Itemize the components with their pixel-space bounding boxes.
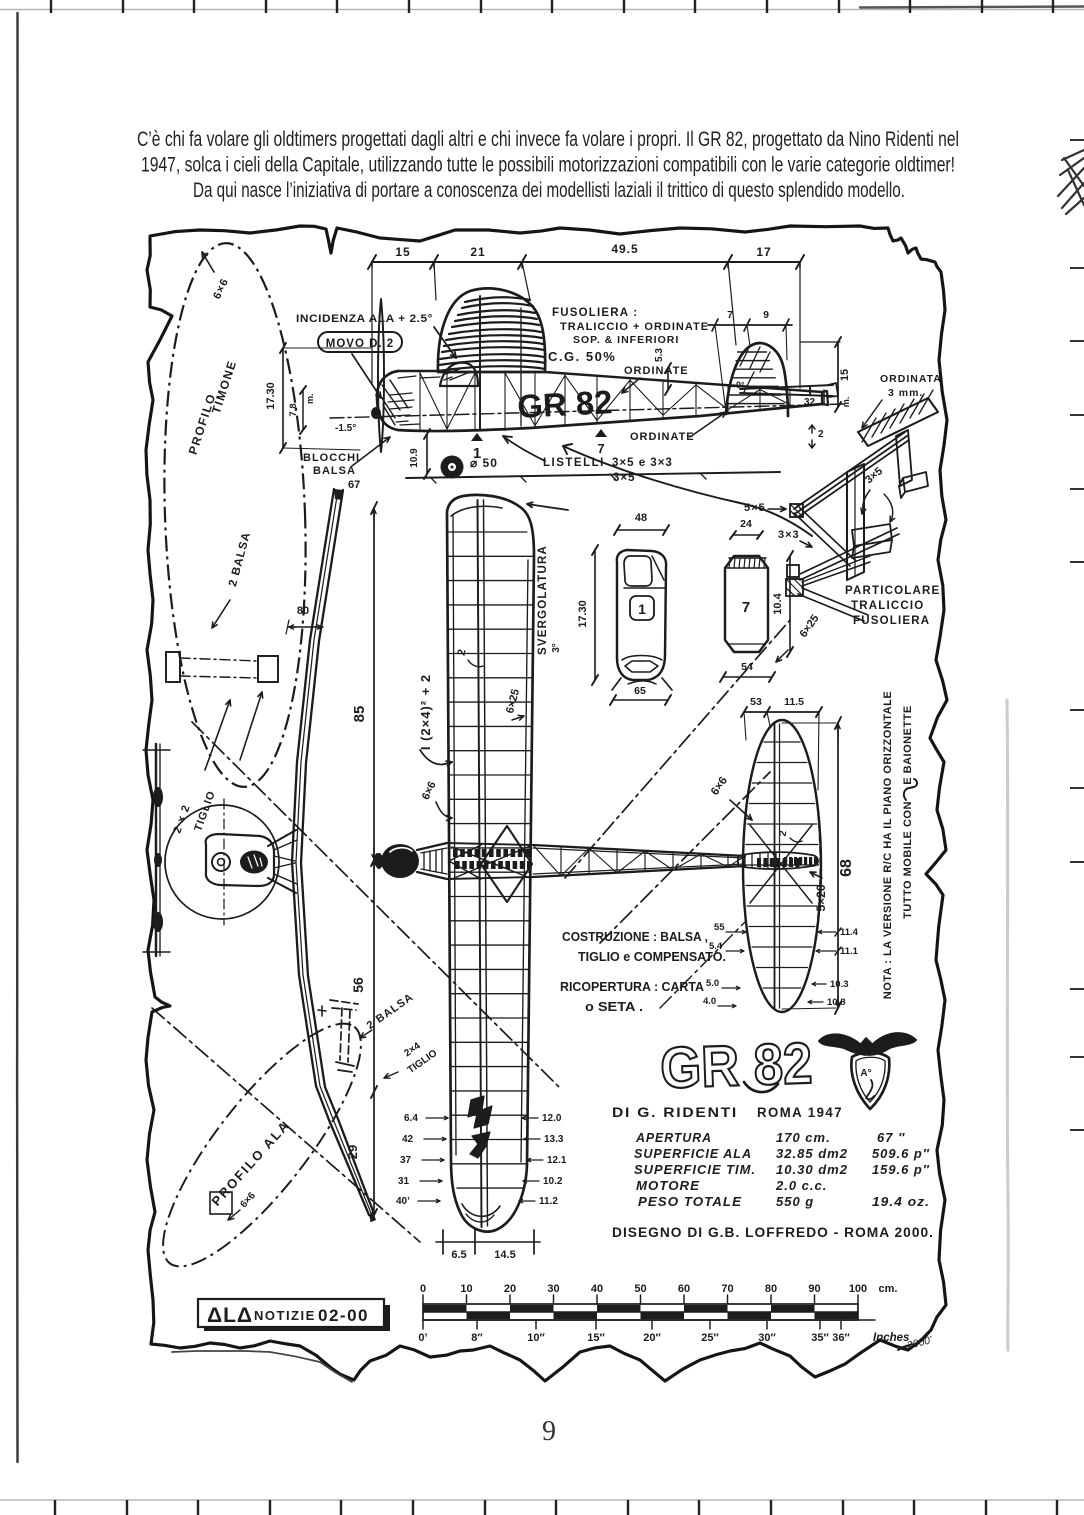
svg-text:E BAIONETTE: E BAIONETTE xyxy=(902,705,914,784)
svg-text:13.3: 13.3 xyxy=(544,1134,564,1145)
svg-text:100: 100 xyxy=(849,1283,867,1295)
svg-text:10: 10 xyxy=(460,1283,472,1295)
svg-text:10.3: 10.3 xyxy=(830,979,849,990)
svg-text:30″: 30″ xyxy=(758,1332,776,1344)
svg-text:INCIDENZA ALA + 2.5°: INCIDENZA ALA + 2.5° xyxy=(296,313,433,325)
svg-text:53: 53 xyxy=(750,696,762,708)
svg-text:6×25: 6×25 xyxy=(504,688,522,715)
svg-text:10.30 dm2: 10.30 dm2 xyxy=(776,1162,848,1177)
svg-text:11.4: 11.4 xyxy=(840,927,859,938)
svg-text:6×6: 6×6 xyxy=(211,276,231,301)
svg-text:ROMA 1947: ROMA 1947 xyxy=(757,1105,843,1120)
svg-text:5.3: 5.3 xyxy=(654,348,665,362)
svg-text:509.6 p″: 509.6 p″ xyxy=(872,1146,930,1161)
svg-text:11.2: 11.2 xyxy=(539,1196,558,1207)
svg-text:FUSOLIERA :: FUSOLIERA : xyxy=(552,307,638,319)
svg-text:40: 40 xyxy=(591,1283,603,1295)
svg-text:4.0: 4.0 xyxy=(703,996,716,1007)
svg-text:Da qui nasce l’iniziativa di p: Da qui nasce l’iniziativa di portare a c… xyxy=(193,179,905,202)
svg-text:A°: A° xyxy=(860,1068,871,1079)
svg-text:15: 15 xyxy=(395,245,410,259)
svg-text:56: 56 xyxy=(350,977,366,993)
svg-text:3 mm.: 3 mm. xyxy=(888,387,923,399)
svg-text:80: 80 xyxy=(297,605,309,617)
svg-text:2 BALSA: 2 BALSA xyxy=(365,991,416,1032)
svg-text:21: 21 xyxy=(470,245,485,259)
svg-text:DISEGNO DI G.B. LOFFREDO -: DISEGNO DI G.B. LOFFREDO - ROMA 2000. xyxy=(612,1225,934,1240)
svg-text:cm.: cm. xyxy=(879,1283,898,1295)
svg-text:19.4 oz.: 19.4 oz. xyxy=(872,1194,930,1209)
svg-text:6×6: 6×6 xyxy=(420,780,439,802)
svg-text:2: 2 xyxy=(778,829,790,837)
svg-text:GR 82: GR 82 xyxy=(659,1031,813,1101)
svg-text:20″: 20″ xyxy=(643,1332,661,1344)
svg-text:5.0: 5.0 xyxy=(706,978,719,989)
svg-text:12.1: 12.1 xyxy=(547,1155,567,1166)
svg-text:40’: 40’ xyxy=(396,1196,410,1207)
svg-text:24: 24 xyxy=(740,518,752,530)
svg-text:Inches: Inches xyxy=(873,1332,909,1344)
svg-text:49.5: 49.5 xyxy=(611,242,638,256)
svg-text:15″: 15″ xyxy=(587,1332,605,1344)
svg-text:3°: 3° xyxy=(551,643,562,653)
svg-text:ORDINATE: ORDINATE xyxy=(624,365,689,377)
svg-text:2: 2 xyxy=(456,648,469,656)
svg-text:11.1: 11.1 xyxy=(840,946,859,957)
svg-text:9: 9 xyxy=(542,1416,556,1447)
svg-text:17.30: 17.30 xyxy=(577,600,589,628)
svg-text:m.: m. xyxy=(305,393,315,404)
svg-text:90: 90 xyxy=(808,1283,820,1295)
svg-text:10.2: 10.2 xyxy=(543,1176,563,1187)
svg-text:50: 50 xyxy=(634,1283,646,1295)
svg-text:RICOPERTURA : CARTA: RICOPERTURA : CARTA xyxy=(560,979,705,994)
svg-text:65: 65 xyxy=(634,685,646,697)
svg-text:GR 82: GR 82 xyxy=(516,383,613,425)
svg-text:APERTURA: APERTURA xyxy=(635,1130,712,1145)
svg-text:8″: 8″ xyxy=(471,1332,483,1344)
svg-text:SOP. & INFERIORI: SOP. & INFERIORI xyxy=(573,334,679,346)
svg-text:MOTORE: MOTORE xyxy=(636,1178,700,1193)
svg-text:5×20: 5×20 xyxy=(814,884,828,911)
svg-text:10.8: 10.8 xyxy=(827,997,846,1008)
svg-text:COSTRUZIONE : BALSA ,: COSTRUZIONE : BALSA , xyxy=(562,929,708,944)
svg-text:7: 7 xyxy=(742,599,750,616)
svg-text:31: 31 xyxy=(398,1176,410,1187)
svg-text:35″: 35″ xyxy=(811,1332,829,1344)
svg-text:2 BALSA: 2 BALSA xyxy=(227,531,253,588)
svg-text:67: 67 xyxy=(348,479,360,491)
svg-text:C.G. 50%: C.G. 50% xyxy=(548,349,616,364)
svg-text:1947, solca i cieli della Capi: 1947, solca i cieli della Capitale, util… xyxy=(141,154,955,177)
svg-text:DI G. RIDENTI: DI G. RIDENTI xyxy=(612,1105,738,1120)
svg-text:ΔLΔ: ΔLΔ xyxy=(207,1304,253,1327)
svg-text:20: 20 xyxy=(504,1283,516,1295)
svg-text:2: 2 xyxy=(818,429,824,440)
svg-text:SUPERFICIE ALA: SUPERFICIE ALA xyxy=(634,1146,752,1161)
svg-text:10″: 10″ xyxy=(527,1332,545,1344)
svg-text:11.5: 11.5 xyxy=(784,696,804,708)
svg-text:9: 9 xyxy=(763,309,769,321)
svg-text:BLOCCHI: BLOCCHI xyxy=(303,452,360,464)
svg-text:5×5: 5×5 xyxy=(744,502,766,514)
svg-text:10.9: 10.9 xyxy=(409,448,420,468)
svg-text:10.4: 10.4 xyxy=(772,592,784,614)
svg-text:67 ″: 67 ″ xyxy=(877,1130,905,1145)
svg-text:6×6: 6×6 xyxy=(709,775,730,798)
svg-text:TUTTO MOBILE CON: TUTTO MOBILE CON xyxy=(902,801,914,919)
svg-text:12.0: 12.0 xyxy=(542,1113,562,1124)
svg-text:C’è chi fa volare gli oldtimer: C’è chi fa volare gli oldtimers progetta… xyxy=(137,128,959,151)
svg-text:32: 32 xyxy=(804,397,816,408)
svg-text:02-00: 02-00 xyxy=(318,1306,369,1325)
svg-text:6×25: 6×25 xyxy=(798,613,822,640)
svg-text:60: 60 xyxy=(678,1283,690,1295)
svg-text:48: 48 xyxy=(635,512,647,524)
svg-text:7: 7 xyxy=(727,309,733,321)
svg-text:17.30: 17.30 xyxy=(265,382,277,410)
svg-text:PARTICOLARE: PARTICOLARE xyxy=(845,585,940,597)
svg-text:550 g: 550 g xyxy=(776,1194,814,1209)
svg-text:54: 54 xyxy=(741,661,753,673)
svg-text:I (2×4)² + 2: I (2×4)² + 2 xyxy=(418,674,433,750)
svg-text:55: 55 xyxy=(714,922,725,933)
svg-text:PESO TOTALE: PESO TOTALE xyxy=(638,1194,742,1209)
svg-text:0’: 0’ xyxy=(418,1332,427,1344)
svg-text:6.4: 6.4 xyxy=(404,1113,418,1124)
svg-text:3×5 e 3×3: 3×5 e 3×3 xyxy=(612,457,673,469)
svg-text:25″: 25″ xyxy=(701,1332,719,1344)
svg-text:80: 80 xyxy=(765,1283,777,1295)
svg-text:-1.5°: -1.5° xyxy=(335,423,356,434)
svg-text:NOTIZIE: NOTIZIE xyxy=(254,1308,316,1323)
svg-text:o SETA .: o SETA . xyxy=(585,999,643,1014)
svg-text:32.85 dm2: 32.85 dm2 xyxy=(776,1146,848,1161)
svg-text:14.5: 14.5 xyxy=(494,1249,515,1261)
svg-text:7: 7 xyxy=(597,441,604,456)
svg-text:TIMONE: TIMONE xyxy=(209,358,240,415)
svg-text:70: 70 xyxy=(721,1283,733,1295)
svg-text:37: 37 xyxy=(400,1155,412,1166)
svg-text:6.5: 6.5 xyxy=(451,1249,466,1261)
svg-text:68: 68 xyxy=(838,859,855,877)
svg-text:159.6 p″: 159.6 p″ xyxy=(872,1162,930,1177)
svg-text:2.0 c.c.: 2.0 c.c. xyxy=(775,1178,827,1193)
svg-text:TIGLIO e COMPENSATO.: TIGLIO e COMPENSATO. xyxy=(578,949,726,964)
svg-text:0: 0 xyxy=(420,1283,426,1295)
svg-text:30: 30 xyxy=(547,1283,559,1295)
svg-text:TRALICCIO + ORDINATE: TRALICCIO + ORDINATE xyxy=(560,321,709,333)
svg-text:SVERGOLATURA: SVERGOLATURA xyxy=(537,545,549,655)
svg-text:15: 15 xyxy=(839,369,851,381)
svg-text:ORDINATA: ORDINATA xyxy=(880,373,942,385)
svg-text:NOTA : LA VERSIONE R/C HA IL: NOTA : LA VERSIONE R/C HA IL PIANO ORIZZ… xyxy=(882,691,894,999)
svg-text:6×6: 6×6 xyxy=(238,1190,258,1210)
svg-text:3×5: 3×5 xyxy=(863,465,885,486)
svg-text:42: 42 xyxy=(402,1134,414,1145)
svg-text:m.: m. xyxy=(841,397,851,408)
svg-text:3×3: 3×3 xyxy=(778,529,800,541)
svg-text:36″: 36″ xyxy=(832,1332,850,1344)
svg-text:ORDINATE: ORDINATE xyxy=(630,431,695,443)
svg-text:0°: 0° xyxy=(736,380,745,390)
svg-text:7.8: 7.8 xyxy=(288,403,299,416)
svg-text:SUPERFICIE TIM.: SUPERFICIE TIM. xyxy=(634,1162,756,1177)
svg-text:1: 1 xyxy=(473,445,481,462)
svg-text:29: 29 xyxy=(345,1145,360,1159)
svg-text:85: 85 xyxy=(351,706,368,723)
svg-text:FUSOLIERA: FUSOLIERA xyxy=(853,615,930,627)
svg-text:170 cm.: 170 cm. xyxy=(776,1130,831,1145)
svg-text:BALSA: BALSA xyxy=(313,465,356,477)
svg-text:TRALICCIO: TRALICCIO xyxy=(851,600,924,612)
svg-text:1: 1 xyxy=(638,601,646,617)
svg-text:17: 17 xyxy=(756,245,771,259)
